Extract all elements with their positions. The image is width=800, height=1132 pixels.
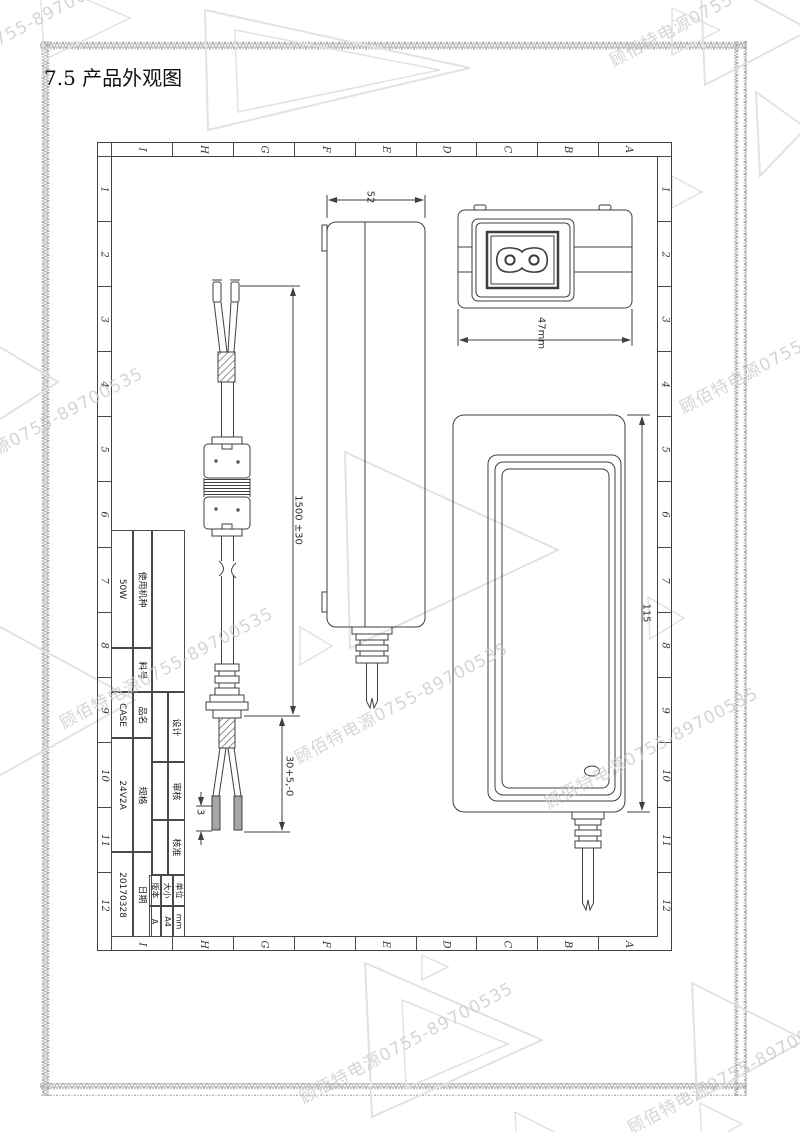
title-block-meta-size-label: 大小 [161, 875, 173, 906]
grid-row-label: 7 [97, 547, 111, 612]
grid-row-label: 10 [97, 742, 111, 807]
title-block-meta-version-value: A [149, 906, 161, 937]
dimension-label-cable-length: 1500 ±30 [293, 495, 304, 545]
title-block-label-model: 使用机种 [133, 530, 152, 648]
dimension-label-body-width: 52 [365, 191, 376, 204]
grid-row-label: 7 [658, 547, 672, 612]
dimension-label-strip-length: 30+5,-0 [284, 756, 295, 797]
title-block-sign-space [152, 820, 168, 875]
title-block-meta-version-label: 版本 [149, 875, 161, 906]
dimension-label-tip-length: 3 [195, 809, 206, 815]
grid-col-label: G [233, 142, 294, 156]
grid-col-label: C [476, 937, 537, 951]
grid-col-label: H [172, 142, 233, 156]
title-block-empty-cell [152, 530, 185, 692]
grid-row-label: 3 [97, 286, 111, 351]
title-block-label-review: 审核 [168, 762, 185, 820]
section-heading: 7.5 产品外观图 [44, 62, 182, 91]
watermark-text: 顾佰特电源0755-89700535 [294, 974, 517, 1108]
grid-row-label: 8 [97, 612, 111, 677]
title-block-value-date: 20170328 [111, 852, 133, 937]
dimension-label-body-height: 115 [641, 603, 652, 622]
title-block-value-model: 50W [111, 530, 133, 648]
title-block-label-spec: 规格 [133, 738, 152, 852]
grid-row-label: 12 [97, 872, 111, 937]
grid-row-label: 8 [658, 612, 672, 677]
grid-row-label: 11 [658, 807, 672, 872]
watermark-text: 顾佰特电源0755-89700535 [674, 284, 800, 418]
grid-col-label: F [294, 937, 355, 951]
grid-row-label: 1 [658, 156, 672, 221]
title-block-value-partno [111, 648, 133, 692]
drawing-frame-inner [111, 156, 658, 937]
grid-row-label: 6 [658, 481, 672, 547]
grid-row-label: 2 [658, 221, 672, 286]
title-block-value-name: CASE [111, 692, 133, 738]
title-block-meta-unit-value: mm [173, 906, 185, 937]
grid-row-label: 3 [658, 286, 672, 351]
title-block-label-design: 设计 [168, 692, 185, 762]
dimension-label-inlet-width: 47mm [536, 317, 547, 349]
grid-row-label: 5 [658, 416, 672, 481]
grid-row-label: 4 [658, 351, 672, 416]
grid-row-label: 2 [97, 221, 111, 286]
grid-row-label: 6 [97, 481, 111, 547]
watermark-text: 顾佰特电源0755-89700535 [604, 0, 800, 72]
grid-col-label: H [172, 937, 233, 951]
title-block-label-name: 品名 [133, 692, 152, 738]
grid-col-label: D [416, 937, 476, 951]
grid-col-label: C [476, 142, 537, 156]
title-block-value-spec: 24V2A [111, 738, 133, 852]
grid-row-label: 1 [97, 156, 111, 221]
grid-row-label: 5 [97, 416, 111, 481]
grid-row-label: 4 [97, 351, 111, 416]
grid-col-label: D [416, 142, 476, 156]
grid-col-label: B [537, 142, 598, 156]
title-block-label-partno: 料号 [133, 648, 152, 692]
grid-col-label: I [111, 937, 172, 951]
scanned-drawing-page: 顾佰特电源0755-89700535 顾佰特电源0755-89700535 顾佰… [0, 0, 800, 1132]
title-block-meta-size-value: A4 [161, 906, 173, 937]
grid-col-label: A [598, 937, 658, 951]
grid-col-label: G [233, 937, 294, 951]
grid-row-label: 12 [658, 872, 672, 937]
title-block-label-approve: 核准 [168, 820, 185, 875]
grid-col-label: I [111, 142, 172, 156]
grid-row-label: 9 [658, 677, 672, 742]
watermark-text: 顾佰特电源0755-89700535 [622, 1004, 800, 1132]
grid-col-label: A [598, 142, 658, 156]
grid-row-label: 10 [658, 742, 672, 807]
title-block-meta-unit-label: 单位 [173, 875, 185, 906]
title-block-sign-space [152, 762, 168, 820]
grid-row-label: 9 [97, 677, 111, 742]
title-block-sign-space [152, 692, 168, 762]
grid-col-label: E [355, 937, 416, 951]
grid-col-label: E [355, 142, 416, 156]
grid-col-label: F [294, 142, 355, 156]
grid-row-label: 11 [97, 807, 111, 872]
grid-col-label: B [537, 937, 598, 951]
